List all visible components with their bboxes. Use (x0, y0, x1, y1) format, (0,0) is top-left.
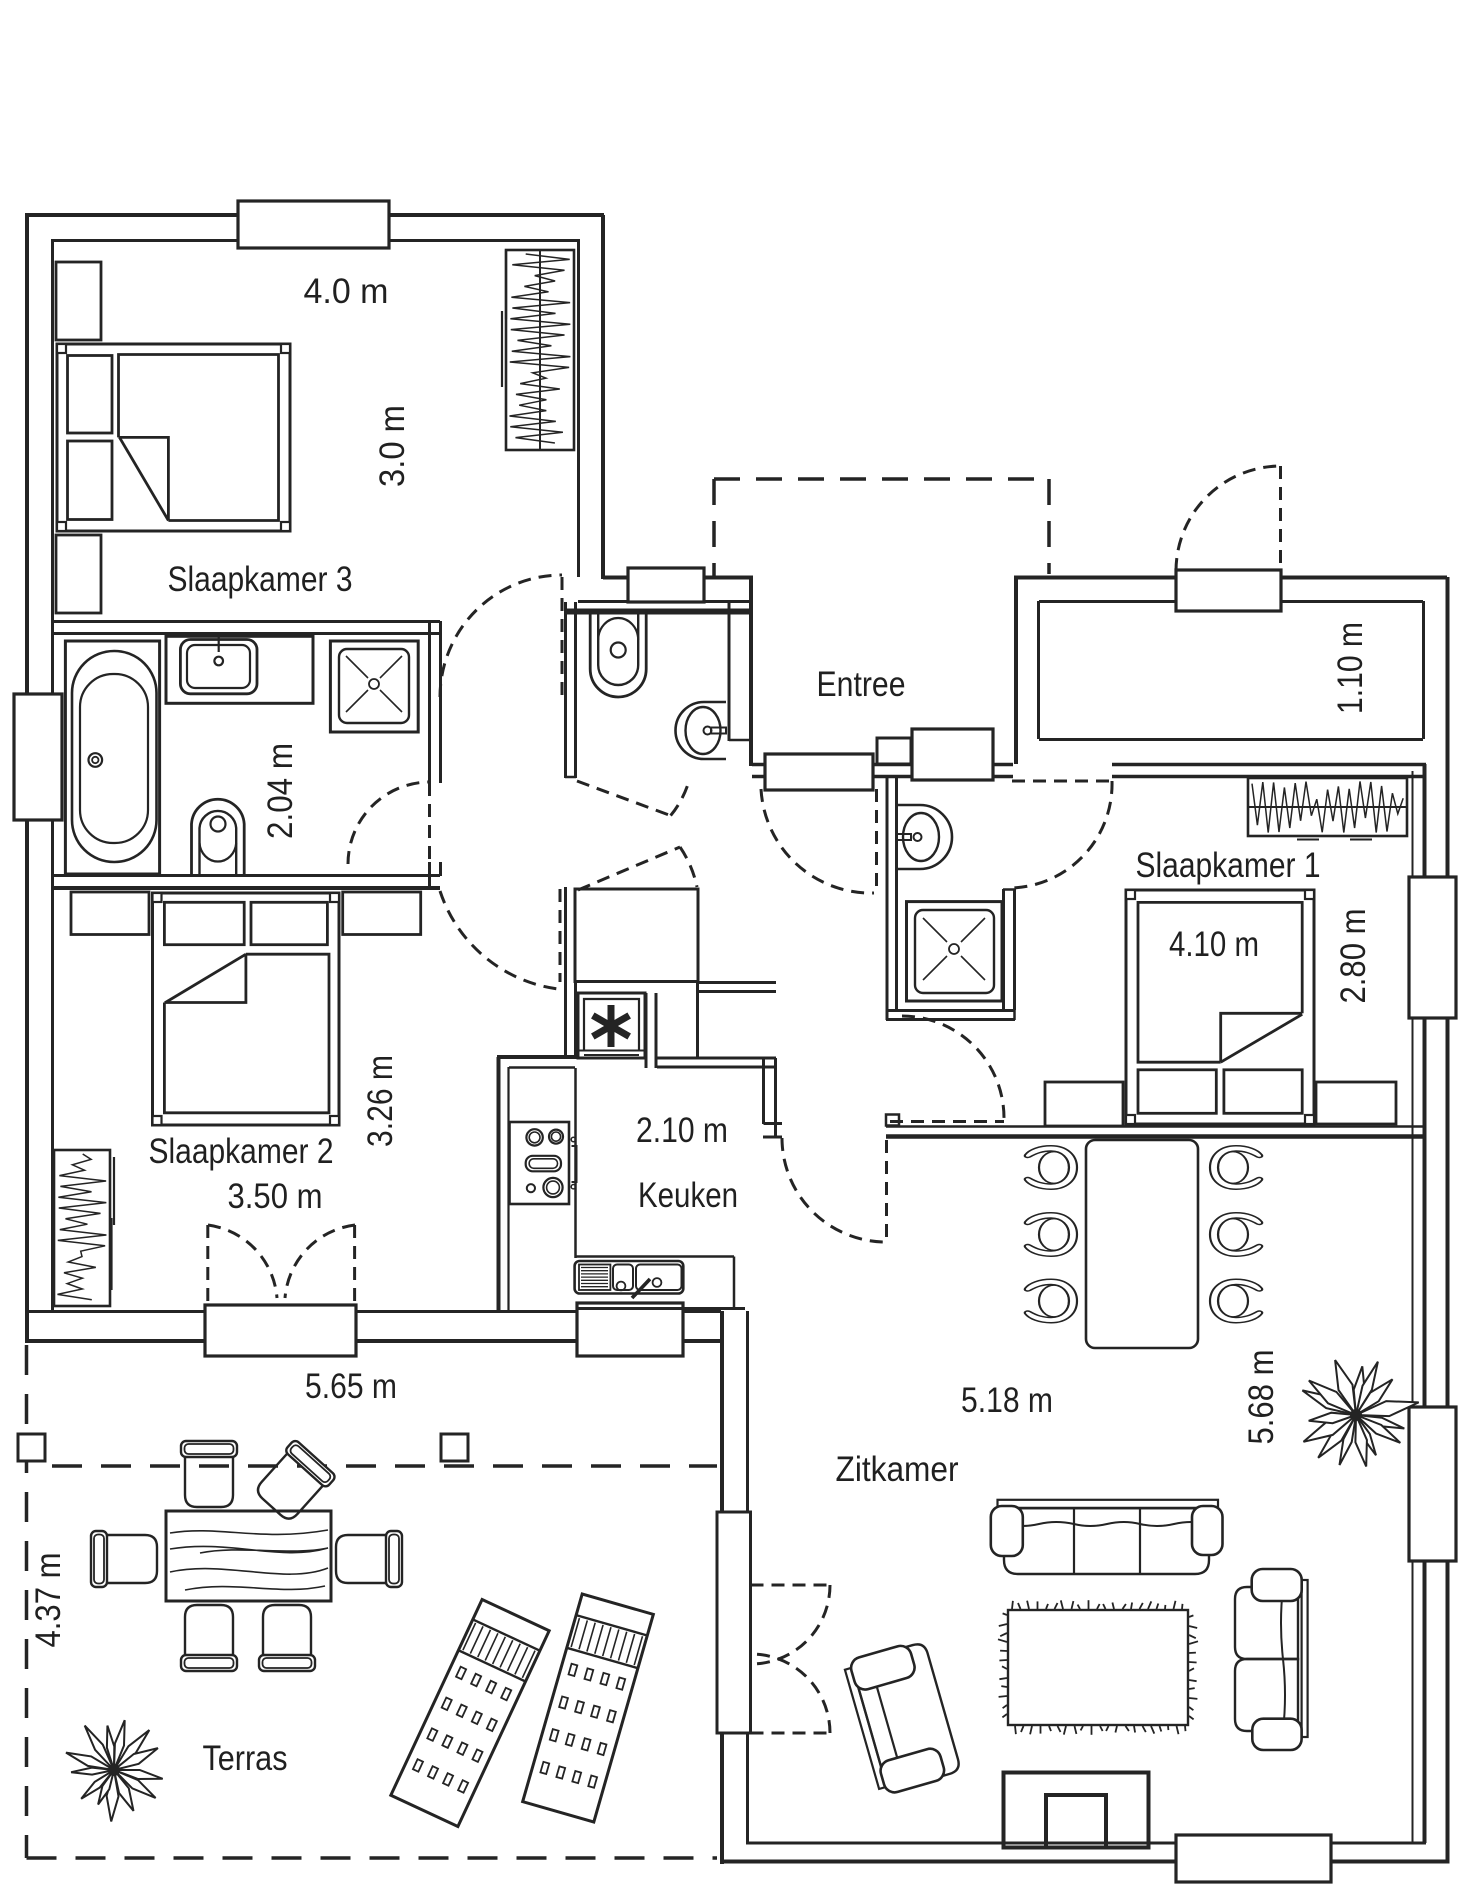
svg-text:5.65 m: 5.65 m (305, 1367, 397, 1406)
svg-text:2.04 m: 2.04 m (261, 743, 300, 839)
svg-text:4.0 m: 4.0 m (304, 272, 389, 311)
svg-text:4.37 m: 4.37 m (29, 1553, 68, 1648)
svg-text:2.10 m: 2.10 m (636, 1111, 728, 1150)
svg-text:Keuken: Keuken (638, 1176, 738, 1215)
svg-text:1.10 m: 1.10 m (1331, 622, 1370, 714)
svg-text:Slaapkamer 3: Slaapkamer 3 (168, 560, 353, 599)
svg-text:3.26 m: 3.26 m (361, 1055, 400, 1147)
svg-text:Zitkamer: Zitkamer (836, 1450, 959, 1489)
svg-text:Slaapkamer 1: Slaapkamer 1 (1136, 846, 1321, 885)
svg-text:5.68 m: 5.68 m (1242, 1350, 1281, 1445)
svg-text:4.10 m: 4.10 m (1169, 925, 1259, 964)
svg-text:Terras: Terras (203, 1739, 288, 1778)
svg-text:Entree: Entree (817, 665, 906, 704)
svg-text:5.18 m: 5.18 m (961, 1381, 1053, 1420)
svg-text:2.80 m: 2.80 m (1334, 909, 1373, 1004)
svg-text:Slaapkamer 2: Slaapkamer 2 (149, 1132, 334, 1171)
svg-text:3.0 m: 3.0 m (373, 405, 412, 487)
svg-text:3.50 m: 3.50 m (228, 1177, 323, 1216)
